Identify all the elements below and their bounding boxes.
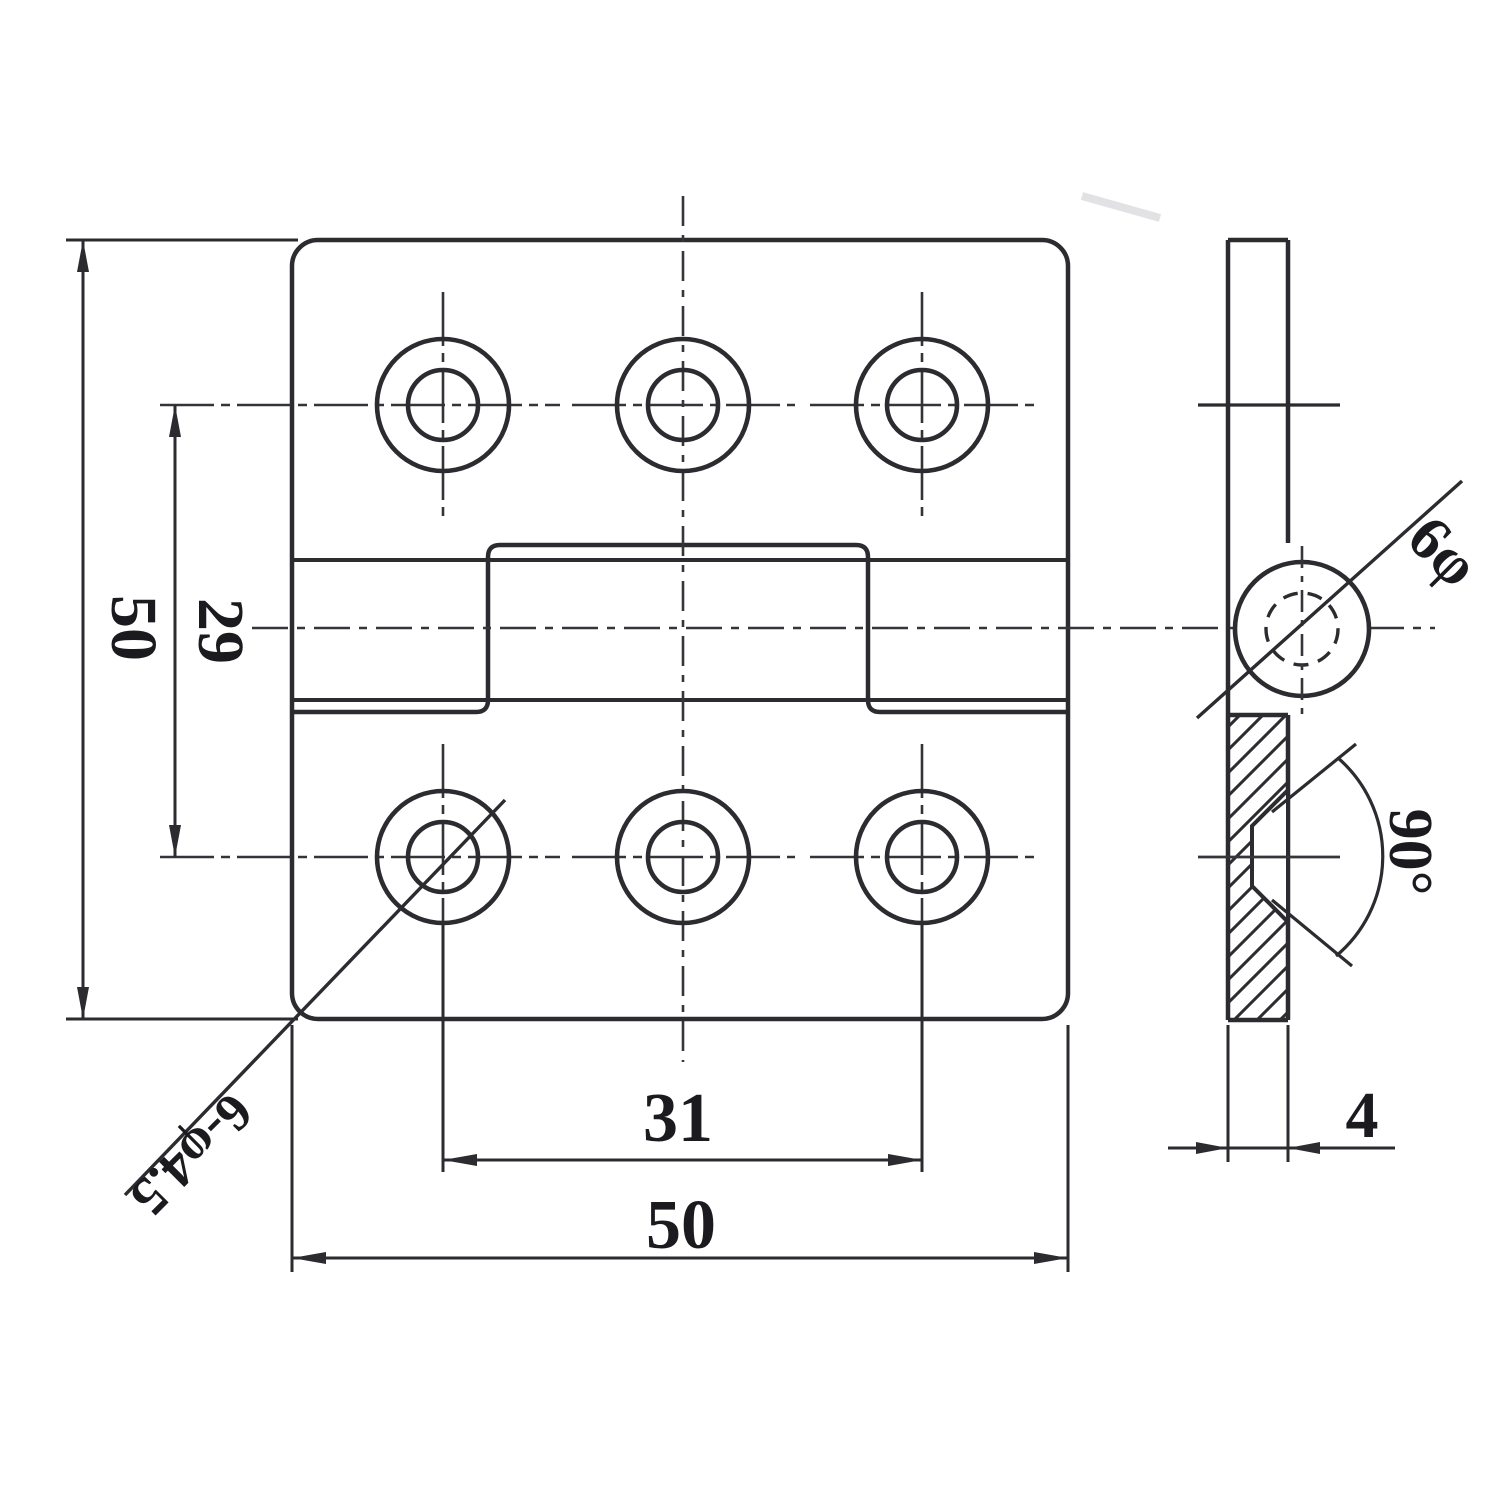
hinge-band-lines bbox=[292, 560, 1068, 700]
dim-thickness-label: 4 bbox=[1346, 1079, 1379, 1152]
dim-hole-row-spacing-label: 29 bbox=[184, 598, 257, 664]
dim-plate-width-label: 50 bbox=[646, 1187, 716, 1264]
dim-plate-height-label: 50 bbox=[97, 595, 170, 661]
side-view: 90° 6φ 4 bbox=[1168, 240, 1492, 1162]
countersink-angle-annotation: 90° bbox=[1272, 744, 1444, 966]
leader-screw-holes: 6-φ4.5 bbox=[119, 800, 505, 1228]
leader-pin-diameter-label: 6φ bbox=[1394, 503, 1491, 600]
dim-thickness: 4 bbox=[1168, 1025, 1395, 1162]
countersink-angle-label: 90° bbox=[1376, 809, 1444, 896]
hinge-technical-drawing: 50 29 31 50 6-φ4.5 bbox=[0, 0, 1500, 1500]
knuckle-barrel bbox=[1235, 546, 1369, 714]
scan-smudge bbox=[1082, 196, 1160, 218]
dim-hole-row-spacing: 29 bbox=[169, 405, 257, 857]
side-leaf-sectioned bbox=[1198, 715, 1340, 1020]
leader-screw-holes-label: 6-φ4.5 bbox=[119, 1082, 265, 1228]
dim-hole-col-spacing-label: 31 bbox=[643, 1080, 713, 1157]
hinge-drawing-page: 50 29 31 50 6-φ4.5 bbox=[0, 0, 1500, 1500]
dim-plate-height: 50 bbox=[66, 240, 298, 1019]
